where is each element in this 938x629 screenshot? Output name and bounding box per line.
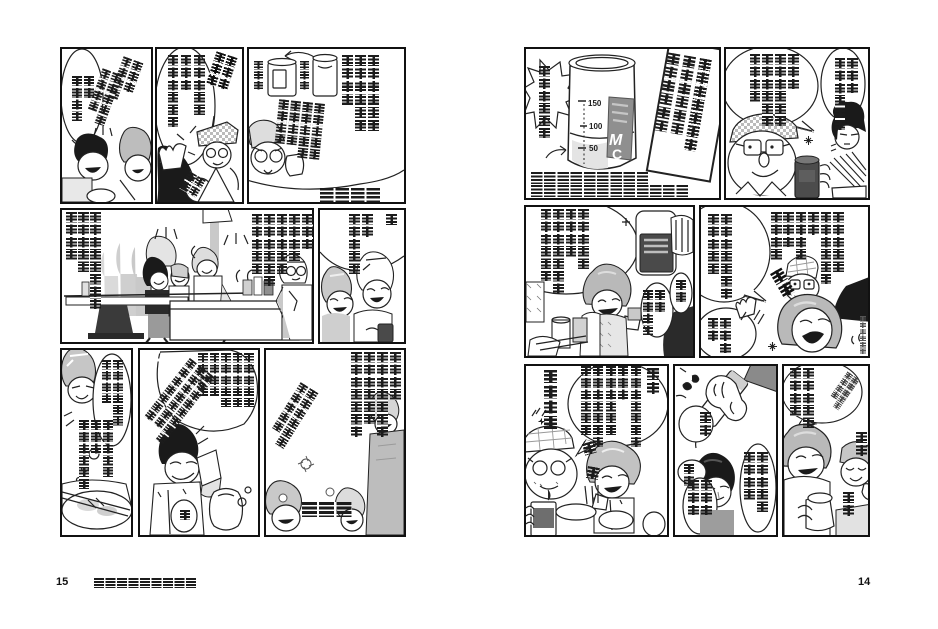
- svg-text:C: C: [612, 146, 622, 162]
